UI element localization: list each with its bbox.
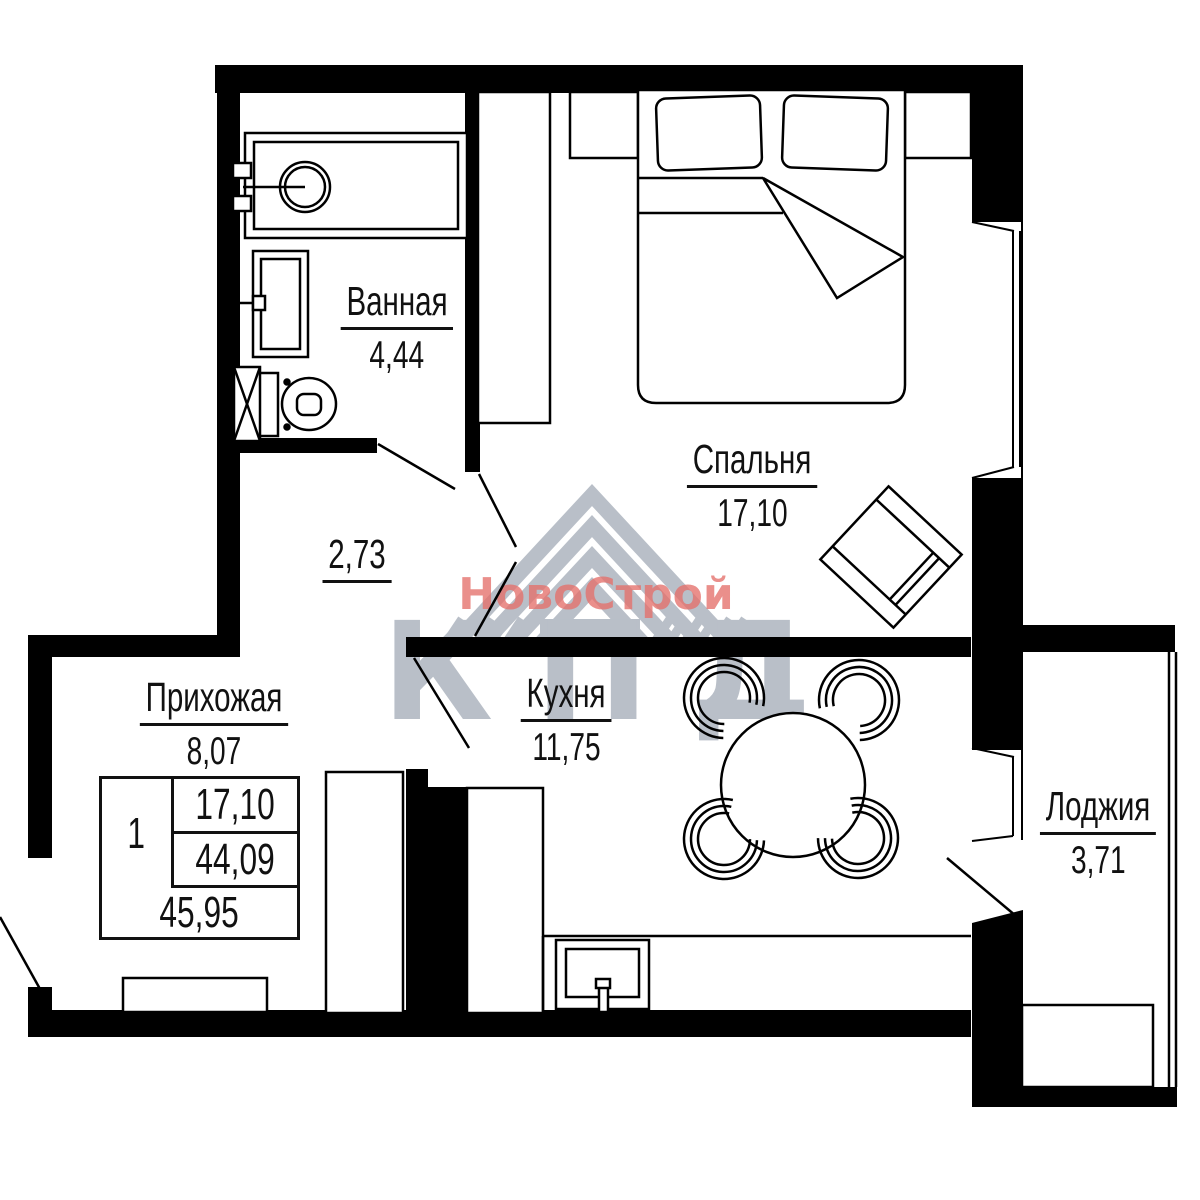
loggia-door — [947, 858, 1016, 916]
toilet-bolt-2 — [285, 425, 290, 430]
entrance-door — [0, 917, 40, 989]
corridor-area: 2,73 — [323, 533, 392, 583]
kitchen-loggia-window — [972, 748, 1023, 841]
wall-entrance-stub — [28, 987, 52, 1012]
kitchen-fridge — [467, 788, 543, 1013]
wall-kitchen-loggia-b — [972, 910, 1023, 1107]
wall-partition-a — [406, 769, 428, 1013]
spec-apartment-area-cell: 44,09 — [174, 834, 297, 888]
floor-plan-canvas: НовоСтрой КПД — [0, 0, 1200, 1200]
bedroom-door-leaf-2 — [475, 562, 516, 636]
room-label-corridor: 2,73 — [309, 533, 405, 583]
bathroom-door — [378, 444, 455, 489]
bathtub-tap-1 — [233, 163, 251, 178]
room-label-bathroom: Ванная 4,44 — [319, 280, 475, 377]
sink-faucet — [253, 296, 265, 310]
hallway-name: Прихожая — [140, 676, 288, 726]
pillow-left — [656, 95, 762, 171]
bathroom-sink-inner — [261, 259, 300, 349]
bedroom-door-leaf-1 — [479, 474, 516, 547]
spec-rooms-count-cell: 1 — [102, 779, 174, 888]
wall-left-upper — [217, 65, 240, 657]
toilet-bolt-1 — [285, 380, 290, 385]
spec-apartment-area: 44,09 — [196, 835, 275, 885]
loggia-bench — [1022, 1005, 1153, 1087]
wall-loggia-bottom — [972, 1087, 1177, 1107]
floor-plan-drawing — [0, 0, 1200, 1200]
wall-hallway-top — [28, 635, 240, 657]
room-label-bedroom: Спальня 17,10 — [662, 438, 843, 535]
kitchen-door — [414, 658, 469, 748]
spec-total-area: 45,95 — [160, 888, 239, 938]
hallway-wardrobe — [326, 772, 403, 1013]
spec-total-area-cell: 45,95 — [102, 888, 297, 937]
room-label-hallway: Прихожая 8,07 — [111, 676, 317, 773]
bedroom-wardrobe — [478, 92, 550, 423]
nightstand-left — [570, 92, 638, 158]
bathroom-name: Ванная — [341, 280, 454, 330]
wall-left-lower — [28, 635, 52, 858]
kitchen-name: Кухня — [521, 672, 612, 722]
nightstand-right — [905, 92, 971, 158]
wall-kitchen-loggia-a — [972, 652, 1023, 752]
pillow-right — [782, 95, 888, 171]
spec-living-area-cell: 17,10 — [174, 779, 297, 834]
bathroom-area: 4,44 — [370, 336, 425, 377]
kitchen-faucet-knob — [596, 979, 610, 988]
wall-partition-b — [428, 787, 467, 1013]
loggia-area: 3,71 — [1071, 841, 1126, 882]
toilet-bowl-inner — [297, 394, 321, 415]
room-label-loggia: Лоджия 3,71 — [1017, 785, 1178, 882]
loggia-name: Лоджия — [1040, 785, 1156, 835]
wall-kitchen-top — [406, 637, 971, 657]
bedroom-window — [972, 222, 1023, 478]
spec-living-area: 17,10 — [196, 780, 275, 830]
hallway-area: 8,07 — [187, 732, 242, 773]
hallway-cabinet — [123, 978, 267, 1012]
bathtub-tap-2 — [233, 196, 251, 211]
wall-loggia-top — [972, 625, 1175, 652]
kitchen-area: 11,75 — [532, 728, 600, 769]
dining-table — [721, 713, 865, 857]
wall-right-top — [972, 93, 1023, 224]
apartment-spec-table: 1 17,10 44,09 45,95 — [99, 776, 300, 940]
spec-rooms-count: 1 — [128, 809, 146, 859]
bedroom-name: Спальня — [687, 438, 817, 488]
room-label-kitchen: Кухня 11,75 — [503, 672, 629, 769]
bedroom-area: 17,10 — [717, 494, 787, 535]
